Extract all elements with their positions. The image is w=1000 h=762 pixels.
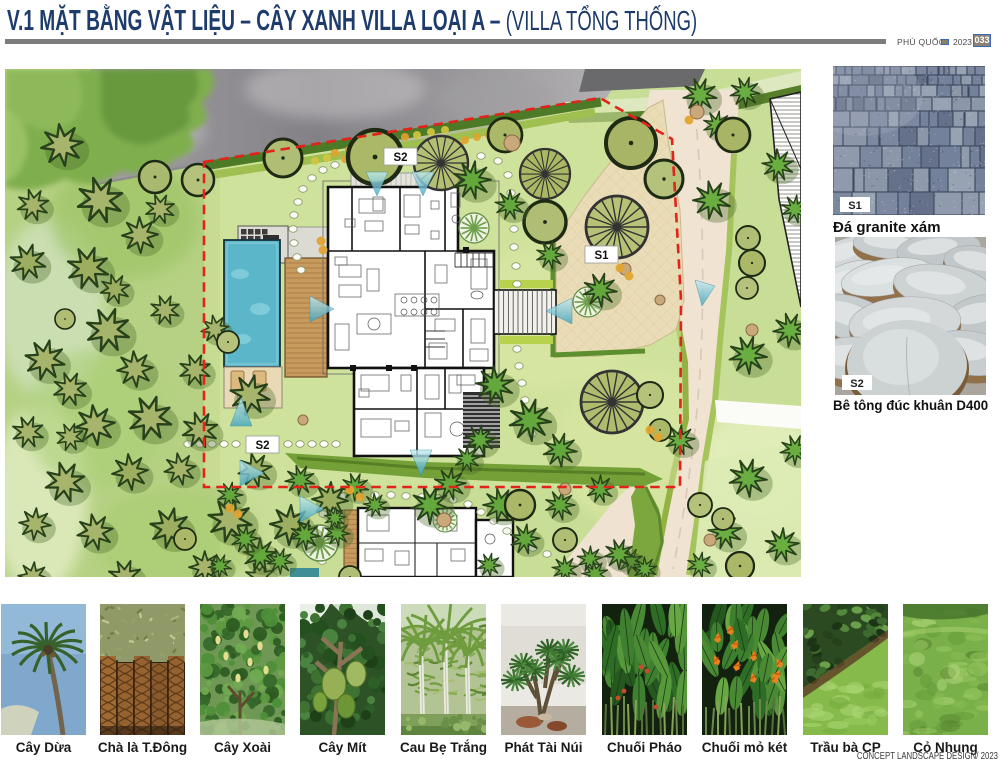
svg-text:S1: S1 <box>594 250 609 262</box>
svg-text:S2: S2 <box>850 378 863 390</box>
svg-text:S2: S2 <box>255 440 269 452</box>
svg-text:S1: S1 <box>848 200 861 212</box>
svg-text:S2: S2 <box>393 152 407 164</box>
